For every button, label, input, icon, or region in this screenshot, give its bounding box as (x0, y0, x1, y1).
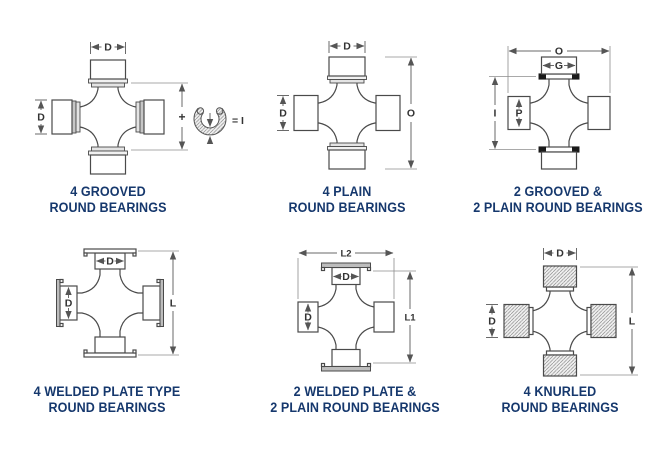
caption-2-grooved-2-plain: 2 GROOVED & 2 PLAIN ROUND BEARINGS (473, 184, 642, 215)
dim-label-cap-diameter: P (515, 108, 522, 120)
dimension-top-width: D (329, 41, 365, 54)
dimension-top-width: D (91, 42, 126, 55)
dim-label-cap-width: D (106, 256, 114, 268)
cross-body (66, 259, 154, 347)
bearing-cap-left (294, 96, 318, 131)
bearing-cap-left (52, 100, 80, 134)
dim-label-overall-width: L2 (340, 249, 351, 260)
caption-line-1: 4 KNURLED (501, 384, 618, 400)
bearing-cap-right-plain (374, 302, 394, 332)
diagram-2-grooved-2-plain-round-bearings: O G I P (489, 46, 610, 170)
diagram-4-grooved-round-bearings: D D + = I (35, 42, 244, 175)
dimension-left-diameter: D (277, 96, 289, 131)
dim-label-right: L (629, 316, 636, 328)
caption-line-1: 4 PLAIN (288, 184, 405, 200)
bearing-cap-right-knurled (587, 305, 616, 338)
caption-4-plain: 4 PLAIN ROUND BEARINGS (288, 184, 405, 215)
bearing-cap-right (376, 96, 400, 131)
dim-label-left: D (488, 316, 496, 328)
bearing-cap-top (89, 60, 128, 87)
caption-line-1: 2 WELDED PLATE & (270, 384, 439, 400)
caption-4-welded-plate: 4 WELDED PLATE TYPE ROUND BEARINGS (34, 384, 181, 415)
bearing-cap-bottom-plated (84, 337, 136, 357)
dim-label-right: L (170, 298, 177, 310)
caption-line-1: 2 GROOVED & (473, 184, 642, 200)
diagram-4-knurled-round-bearings: D D L (486, 248, 638, 377)
bearing-cap-right (136, 100, 164, 134)
dim-label-overall: O (555, 46, 563, 58)
dimension-left-diameter: D (486, 305, 498, 338)
snap-ring-icon: = I (194, 108, 244, 144)
caption-2-welded-2-plain: 2 WELDED PLATE & 2 PLAIN ROUND BEARINGS (270, 384, 439, 415)
diagram-2-welded-plate-2-plain-round-bearings: L2 D D L1 (298, 249, 416, 372)
bearing-cap-right-plated (143, 280, 164, 327)
dim-label-top: D (343, 41, 351, 53)
caption-line-2: 2 PLAIN ROUND BEARINGS (473, 200, 642, 216)
dim-label-left: D (279, 108, 287, 120)
dim-label-right: O (407, 108, 415, 120)
caption-line-2: ROUND BEARINGS (288, 200, 405, 216)
dim-label-top: D (556, 248, 564, 260)
diagrams-canvas: D D + = I (0, 0, 670, 450)
caption-line-2: ROUND BEARINGS (49, 200, 166, 216)
dim-label-cap-width: D (342, 271, 350, 283)
bearing-cap-bottom-plated (322, 350, 371, 372)
bearing-cap-bottom-grooved (539, 147, 579, 170)
bearing-cap-bottom (328, 143, 367, 169)
caption-line-2: ROUND BEARINGS (34, 400, 181, 416)
dim-label-cap-width: G (555, 60, 563, 72)
bearing-cap-left-knurled (504, 305, 533, 338)
caption-line-2: 2 PLAIN ROUND BEARINGS (270, 400, 439, 416)
caption-line-1: 4 WELDED PLATE TYPE (34, 384, 181, 400)
dim-label-cap-diameter: D (65, 298, 73, 310)
ujoint-bearing-styles-figure: D D + = I (0, 0, 670, 450)
dimension-left-diameter: D (35, 100, 47, 134)
dim-label-cap-diameter: D (304, 312, 312, 324)
bearing-cap-right-plain (588, 97, 610, 130)
snap-ring-equation-label: = I (232, 115, 244, 127)
dim-label-overall-length: L1 (404, 313, 416, 324)
bearing-cap-bottom (89, 147, 128, 174)
dim-label-left: D (37, 112, 45, 124)
dim-label-top: D (104, 42, 112, 54)
bearing-cap-top (328, 57, 367, 83)
caption-4-grooved: 4 GROOVED ROUND BEARINGS (49, 184, 166, 215)
dim-label-inner-span: I (494, 108, 497, 120)
caption-line-2: ROUND BEARINGS (501, 400, 618, 416)
caption-4-knurled: 4 KNURLED ROUND BEARINGS (501, 384, 618, 415)
caption-line-1: 4 GROOVED (49, 184, 166, 200)
dim-label-plus: + (178, 110, 185, 124)
bearing-cap-bottom-knurled (544, 351, 577, 376)
diagram-4-welded-plate-round-bearings: D D L (57, 249, 180, 357)
dimension-top-width: D (544, 248, 577, 261)
diagram-4-plain-round-bearings: D D O (277, 41, 417, 170)
bearing-cap-top-knurled (544, 266, 577, 291)
